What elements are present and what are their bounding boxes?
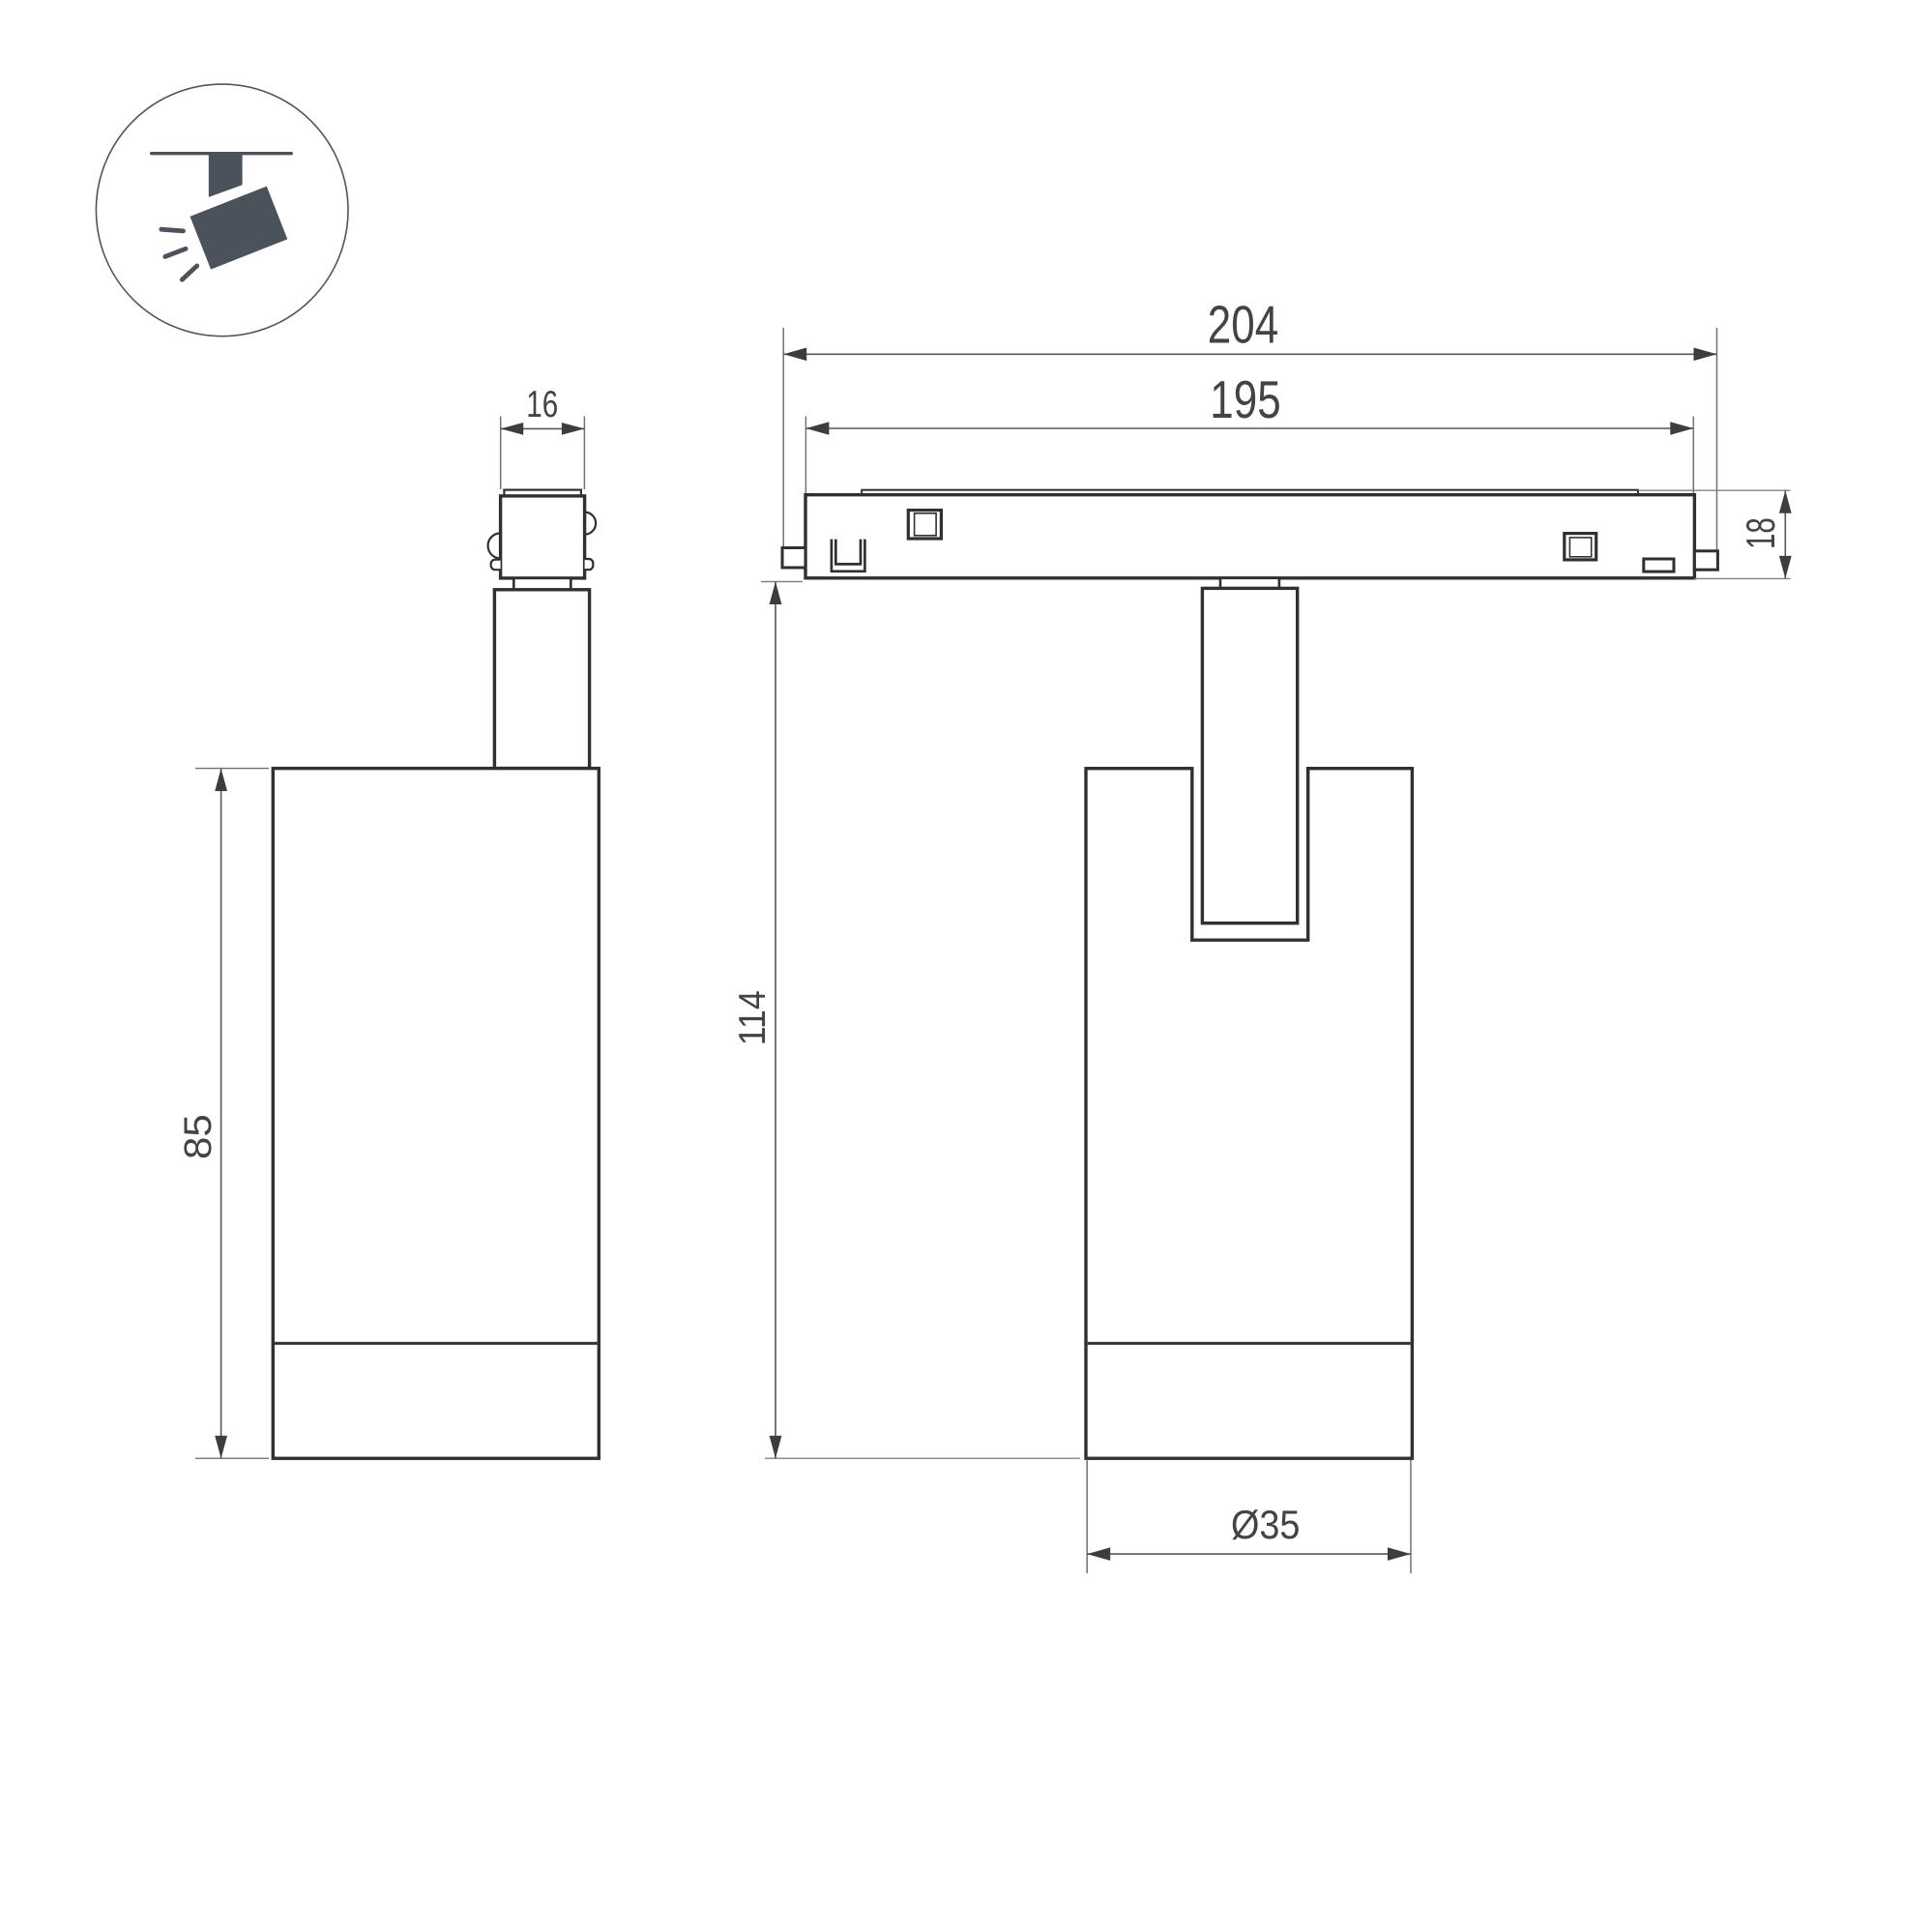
svg-text:Ø35: Ø35	[1231, 1503, 1300, 1547]
svg-text:204: 204	[1208, 295, 1278, 355]
svg-text:85: 85	[176, 1114, 220, 1159]
svg-text:18: 18	[1738, 517, 1784, 549]
svg-text:195: 195	[1210, 370, 1280, 430]
svg-text:114: 114	[731, 990, 774, 1045]
svg-text:16: 16	[526, 384, 558, 425]
